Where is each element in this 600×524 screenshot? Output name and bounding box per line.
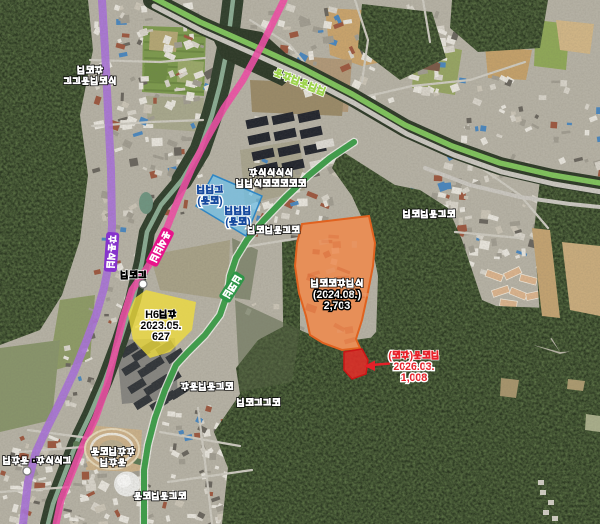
svg-text:·: ·	[32, 456, 36, 468]
